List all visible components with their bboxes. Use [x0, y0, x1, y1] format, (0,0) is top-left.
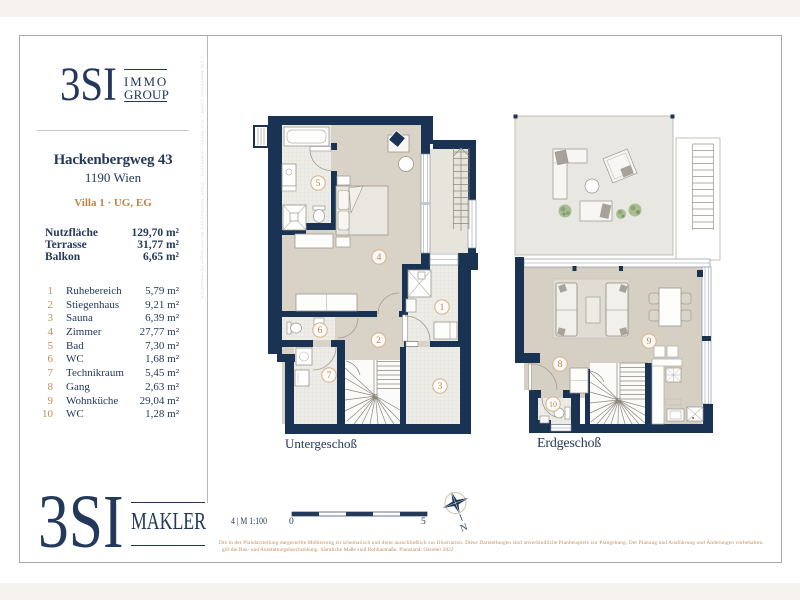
svg-text:6: 6 — [318, 326, 323, 336]
svg-text:5: 5 — [316, 179, 321, 189]
svg-text:10: 10 — [549, 400, 557, 409]
svg-text:9: 9 — [647, 337, 652, 347]
svg-text:1: 1 — [440, 303, 445, 313]
svg-text:3: 3 — [438, 382, 443, 392]
svg-text:8: 8 — [558, 360, 563, 370]
svg-text:2: 2 — [376, 336, 381, 346]
svg-text:7: 7 — [327, 371, 332, 381]
svg-text:4: 4 — [377, 253, 382, 263]
svg-text:N: N — [459, 522, 470, 535]
